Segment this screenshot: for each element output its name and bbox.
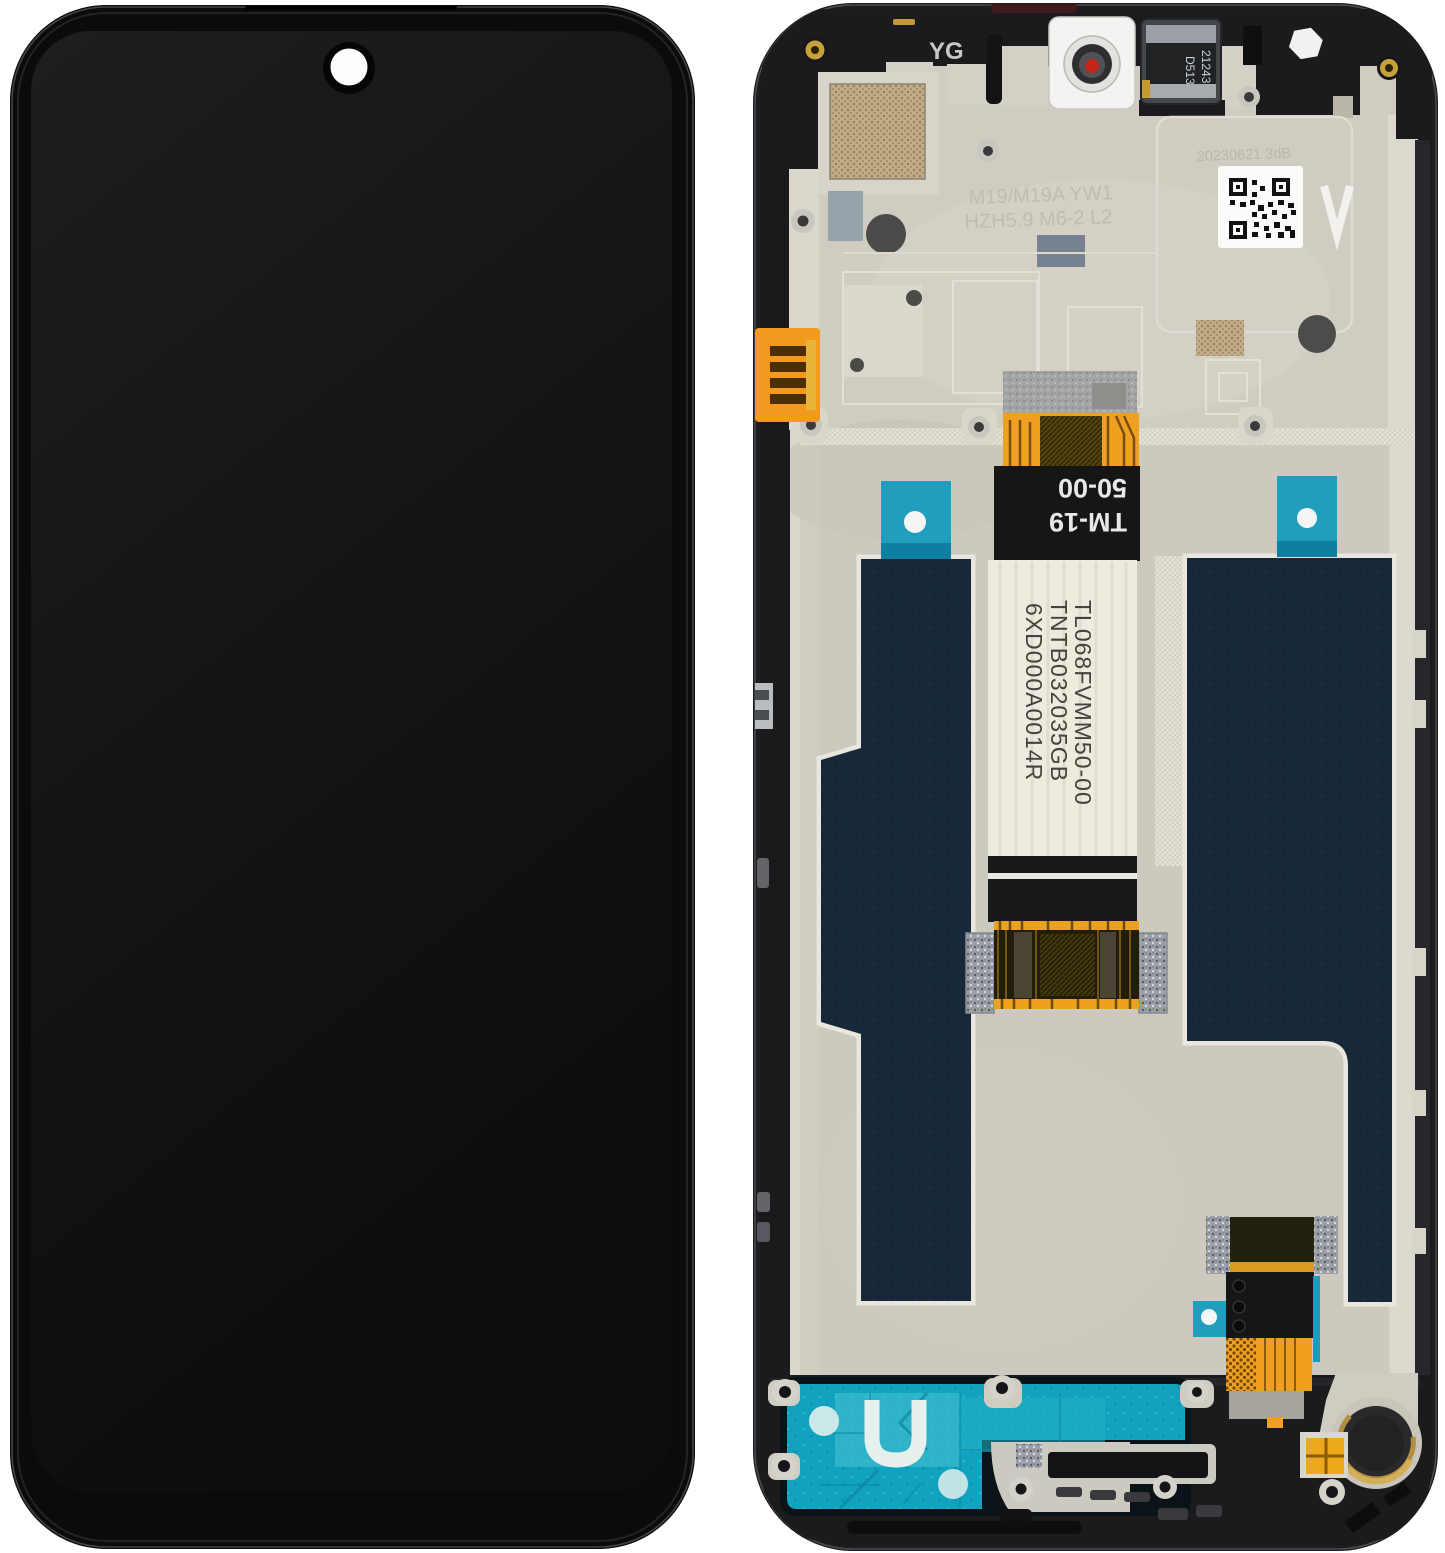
svg-text:21243: 21243 <box>1199 50 1213 84</box>
svg-text:20230621 3dB: 20230621 3dB <box>1197 146 1292 165</box>
svg-text:TNTB032035GB: TNTB032035GB <box>1046 600 1072 782</box>
svg-text:6XD000A0014R: 6XD000A0014R <box>1021 603 1047 781</box>
svg-text:TM-19: TM-19 <box>1049 507 1127 537</box>
svg-text:YG: YG <box>929 38 964 65</box>
svg-text:50-00: 50-00 <box>1058 473 1127 503</box>
svg-text:D513: D513 <box>1183 56 1197 85</box>
svg-text:TL068FVMM50-00: TL068FVMM50-00 <box>1070 600 1096 806</box>
